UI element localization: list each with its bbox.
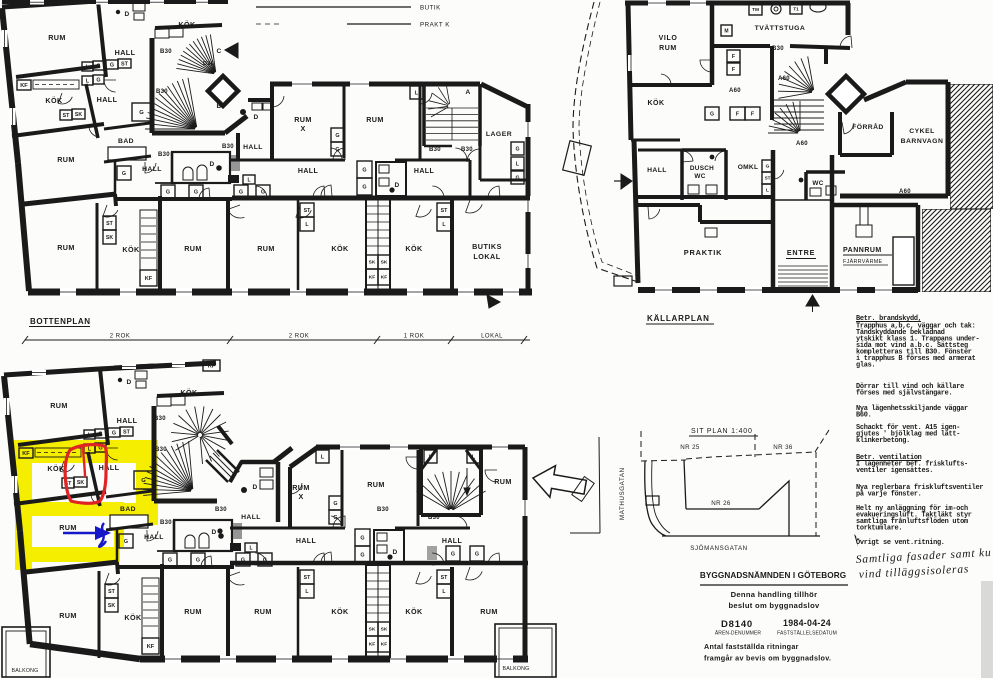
svg-text:KÖK: KÖK bbox=[122, 245, 140, 254]
svg-text:F: F bbox=[732, 67, 735, 73]
svg-text:G: G bbox=[196, 557, 200, 563]
svg-text:SK: SK bbox=[108, 603, 115, 609]
svg-text:RUM: RUM bbox=[59, 611, 77, 620]
svg-text:SK: SK bbox=[75, 112, 82, 118]
svg-text:B60.: B60. bbox=[856, 412, 871, 420]
svg-text:LOKAL: LOKAL bbox=[473, 252, 500, 261]
svg-text:B30: B30 bbox=[429, 147, 441, 153]
svg-text:KÖK: KÖK bbox=[331, 607, 349, 616]
svg-text:glas.: glas. bbox=[856, 362, 875, 370]
svg-text:F: F bbox=[732, 54, 735, 60]
svg-text:HALL: HALL bbox=[99, 463, 120, 472]
svg-text:T1: T1 bbox=[793, 7, 799, 13]
svg-text:L: L bbox=[249, 545, 252, 551]
svg-text:1 ROK: 1 ROK bbox=[404, 334, 425, 340]
svg-text:D: D bbox=[127, 379, 132, 386]
svg-text:MATHUSGATAN: MATHUSGATAN bbox=[619, 467, 626, 520]
svg-text:G: G bbox=[96, 63, 100, 69]
svg-text:G: G bbox=[362, 167, 366, 173]
svg-text:KF: KF bbox=[22, 451, 30, 457]
svg-text:B30: B30 bbox=[215, 507, 227, 513]
svg-text:X: X bbox=[300, 124, 305, 133]
svg-text:BUTIKS: BUTIKS bbox=[472, 242, 502, 251]
svg-text:G: G bbox=[96, 77, 100, 83]
svg-text:ST: ST bbox=[108, 589, 115, 595]
svg-text:A60: A60 bbox=[729, 88, 741, 94]
svg-text:ST: ST bbox=[106, 221, 113, 227]
svg-text:B30: B30 bbox=[428, 515, 440, 521]
svg-text:SK: SK bbox=[369, 627, 376, 633]
svg-text:WC: WC bbox=[694, 173, 705, 180]
svg-text:L: L bbox=[247, 177, 250, 183]
svg-text:G: G bbox=[110, 62, 114, 68]
svg-text:G: G bbox=[239, 189, 243, 195]
svg-text:BOTTENPLAN: BOTTENPLAN bbox=[30, 317, 91, 326]
svg-text:G: G bbox=[333, 501, 337, 507]
svg-text:RUM: RUM bbox=[366, 115, 384, 124]
svg-text:KÖK: KÖK bbox=[647, 98, 664, 107]
svg-text:SK: SK bbox=[106, 235, 113, 241]
svg-text:ST: ST bbox=[123, 429, 131, 435]
svg-text:C: C bbox=[217, 48, 222, 55]
svg-text:X: X bbox=[298, 492, 303, 501]
svg-text:KÖK: KÖK bbox=[405, 607, 423, 616]
svg-text:ÄREN-DENUMMER: ÄREN-DENUMMER bbox=[715, 630, 762, 637]
svg-text:ST: ST bbox=[765, 176, 771, 181]
svg-text:Nya lägenhetsskiljande väggar: Nya lägenhetsskiljande väggar bbox=[856, 405, 968, 413]
svg-text:RUM: RUM bbox=[48, 33, 66, 42]
svg-text:BARNVAGN: BARNVAGN bbox=[901, 138, 944, 145]
svg-text:RUM: RUM bbox=[480, 607, 498, 616]
svg-text:NR 36: NR 36 bbox=[773, 444, 793, 451]
svg-text:SK: SK bbox=[77, 480, 84, 486]
svg-text:KF: KF bbox=[369, 642, 375, 648]
svg-text:ENTRE: ENTRE bbox=[787, 248, 815, 257]
svg-text:RUM: RUM bbox=[57, 155, 75, 164]
svg-text:BUTIK: BUTIK bbox=[420, 5, 441, 12]
svg-text:G: G bbox=[475, 551, 479, 557]
svg-text:PANNRUM: PANNRUM bbox=[843, 247, 882, 254]
svg-text:SIT PLAN 1:400: SIT PLAN 1:400 bbox=[691, 428, 753, 435]
svg-text:G: G bbox=[515, 175, 519, 181]
svg-text:G: G bbox=[766, 164, 770, 170]
svg-text:B30: B30 bbox=[222, 144, 234, 150]
svg-text:D: D bbox=[253, 484, 258, 491]
svg-text:ST: ST bbox=[63, 113, 70, 119]
svg-text:ST: ST bbox=[441, 208, 448, 214]
svg-text:KF: KF bbox=[381, 275, 387, 281]
svg-text:HALL: HALL bbox=[442, 538, 463, 545]
svg-text:D30: D30 bbox=[203, 61, 214, 67]
svg-text:PRAKTIK: PRAKTIK bbox=[684, 248, 722, 257]
svg-text:L: L bbox=[766, 188, 769, 194]
svg-text:BALKONG: BALKONG bbox=[11, 668, 38, 674]
svg-text:FÖRRÅD: FÖRRÅD bbox=[852, 122, 883, 131]
svg-text:M: M bbox=[724, 28, 728, 34]
svg-text:HALL: HALL bbox=[298, 168, 319, 175]
svg-text:RUM: RUM bbox=[50, 401, 68, 410]
svg-text:RUM: RUM bbox=[184, 607, 202, 616]
svg-text:RUM: RUM bbox=[257, 244, 275, 253]
svg-text:B30: B30 bbox=[155, 447, 167, 453]
svg-text:G: G bbox=[710, 111, 714, 117]
svg-text:2 ROK: 2 ROK bbox=[289, 334, 310, 340]
svg-text:G: G bbox=[124, 539, 128, 545]
svg-text:SK: SK bbox=[369, 260, 376, 266]
svg-text:FASTSTÄLLELSEDATUM: FASTSTÄLLELSEDATUM bbox=[777, 630, 837, 637]
svg-text:D: D bbox=[212, 529, 217, 536]
svg-text:förses med självstängare.: förses med självstängare. bbox=[856, 390, 952, 398]
svg-text:KF: KF bbox=[381, 642, 387, 648]
svg-text:2 ROK: 2 ROK bbox=[110, 334, 131, 340]
svg-text:KÖK: KÖK bbox=[124, 613, 142, 622]
svg-text:HALL: HALL bbox=[243, 144, 263, 151]
svg-text:G: G bbox=[166, 189, 170, 195]
svg-text:BAD: BAD bbox=[118, 138, 134, 145]
svg-text:G: G bbox=[451, 551, 455, 557]
svg-text:D: D bbox=[395, 182, 400, 189]
svg-text:torktumlare.: torktumlare. bbox=[856, 525, 902, 533]
svg-text:B30: B30 bbox=[160, 49, 172, 55]
svg-text:HALL: HALL bbox=[414, 168, 435, 175]
svg-text:D8140: D8140 bbox=[721, 619, 753, 630]
svg-text:G: G bbox=[112, 430, 116, 436]
svg-text:HALL: HALL bbox=[97, 95, 118, 104]
svg-text:ST: ST bbox=[121, 61, 129, 67]
svg-text:BAD: BAD bbox=[120, 506, 136, 513]
svg-text:G: G bbox=[168, 557, 172, 563]
svg-text:D: D bbox=[254, 114, 259, 121]
svg-text:RUM: RUM bbox=[494, 477, 512, 486]
svg-text:NR 26: NR 26 bbox=[711, 500, 731, 507]
svg-text:G: G bbox=[362, 184, 366, 190]
svg-text:RUM: RUM bbox=[294, 115, 312, 124]
svg-text:KÄLLARPLAN: KÄLLARPLAN bbox=[647, 314, 710, 323]
svg-text:PRAKT K: PRAKT K bbox=[420, 22, 450, 29]
svg-text:SK: SK bbox=[381, 260, 388, 266]
svg-text:HALL: HALL bbox=[241, 514, 261, 521]
svg-text:BALKONG: BALKONG bbox=[502, 666, 529, 672]
svg-text:SK: SK bbox=[381, 627, 388, 633]
svg-text:D: D bbox=[210, 161, 215, 168]
svg-text:ventiler igensättes.: ventiler igensättes. bbox=[856, 467, 933, 475]
svg-text:RUM: RUM bbox=[367, 480, 385, 489]
svg-text:BYGGNADSNÄMNDEN I GÖTEBORG: BYGGNADSNÄMNDEN I GÖTEBORG bbox=[700, 570, 846, 580]
svg-text:OMKL: OMKL bbox=[738, 164, 759, 171]
svg-text:klinkerbetong.: klinkerbetong. bbox=[856, 437, 910, 445]
svg-text:G: G bbox=[360, 552, 364, 558]
svg-text:KF: KF bbox=[147, 644, 155, 650]
svg-text:RUM: RUM bbox=[57, 243, 75, 252]
svg-text:RUM: RUM bbox=[184, 244, 202, 253]
svg-text:G: G bbox=[194, 189, 198, 195]
svg-text:KF: KF bbox=[20, 83, 28, 89]
svg-text:D: D bbox=[125, 11, 130, 18]
svg-text:VILO: VILO bbox=[659, 35, 678, 42]
svg-text:A: A bbox=[465, 89, 470, 96]
svg-text:KF: KF bbox=[369, 275, 375, 281]
svg-text:G: G bbox=[122, 171, 126, 177]
svg-text:A60: A60 bbox=[796, 141, 808, 147]
svg-text:ST: ST bbox=[304, 575, 311, 581]
svg-text:LAGER: LAGER bbox=[486, 131, 512, 138]
svg-text:RUM: RUM bbox=[659, 45, 677, 52]
svg-text:RUM: RUM bbox=[59, 523, 77, 532]
svg-text:KF: KF bbox=[145, 276, 153, 282]
svg-text:D: D bbox=[393, 549, 398, 556]
svg-text:F: F bbox=[736, 111, 739, 117]
svg-text:HALL: HALL bbox=[647, 167, 667, 174]
svg-text:KÖK: KÖK bbox=[331, 244, 349, 253]
svg-text:A60: A60 bbox=[899, 189, 911, 195]
svg-text:framgår av bevis om byggnadslo: framgår av bevis om byggnadslov. bbox=[704, 654, 831, 663]
svg-text:G: G bbox=[98, 431, 102, 437]
svg-text:CYKEL: CYKEL bbox=[909, 128, 935, 135]
svg-text:G: G bbox=[139, 110, 144, 116]
svg-text:LOKAL: LOKAL bbox=[481, 334, 503, 340]
svg-text:HALL: HALL bbox=[296, 538, 317, 545]
svg-text:TVÄTTSTUGA: TVÄTTSTUGA bbox=[755, 24, 806, 32]
svg-text:TM: TM bbox=[752, 7, 759, 13]
svg-text:på varje fönster.: på varje fönster. bbox=[856, 491, 922, 499]
svg-text:Denna handling tillhör: Denna handling tillhör bbox=[731, 590, 818, 599]
svg-text:FJÄRRVÄRME: FJÄRRVÄRME bbox=[843, 258, 883, 265]
svg-text:HALL: HALL bbox=[117, 416, 138, 425]
svg-text:B30: B30 bbox=[377, 507, 389, 513]
svg-text:B30: B30 bbox=[158, 152, 170, 158]
svg-text:SJÖMANSGATAN: SJÖMANSGATAN bbox=[690, 545, 748, 552]
svg-text:Antal fastställda ritningar: Antal fastställda ritningar bbox=[704, 642, 799, 651]
svg-text:G: G bbox=[335, 133, 339, 139]
svg-text:RUM: RUM bbox=[254, 607, 272, 616]
svg-text:KF: KF bbox=[208, 364, 216, 370]
svg-text:KÖK: KÖK bbox=[405, 244, 423, 253]
svg-text:beslut om byggnadslov: beslut om byggnadslov bbox=[728, 601, 820, 610]
svg-text:B30: B30 bbox=[154, 416, 166, 422]
svg-text:G: G bbox=[360, 535, 364, 541]
svg-text:NR 25: NR 25 bbox=[680, 444, 700, 451]
svg-text:DUSCH: DUSCH bbox=[690, 165, 714, 172]
svg-text:WC: WC bbox=[812, 180, 823, 187]
svg-text:HALL: HALL bbox=[115, 48, 136, 57]
svg-text:ST: ST bbox=[441, 575, 448, 581]
svg-text:B30: B30 bbox=[160, 520, 172, 526]
svg-text:Övrigt se vent.ritning.: Övrigt se vent.ritning. bbox=[856, 538, 945, 547]
svg-text:B30: B30 bbox=[156, 89, 168, 95]
svg-text:F: F bbox=[751, 111, 754, 117]
svg-text:1984-04-24: 1984-04-24 bbox=[783, 618, 831, 628]
svg-text:G: G bbox=[515, 146, 519, 152]
